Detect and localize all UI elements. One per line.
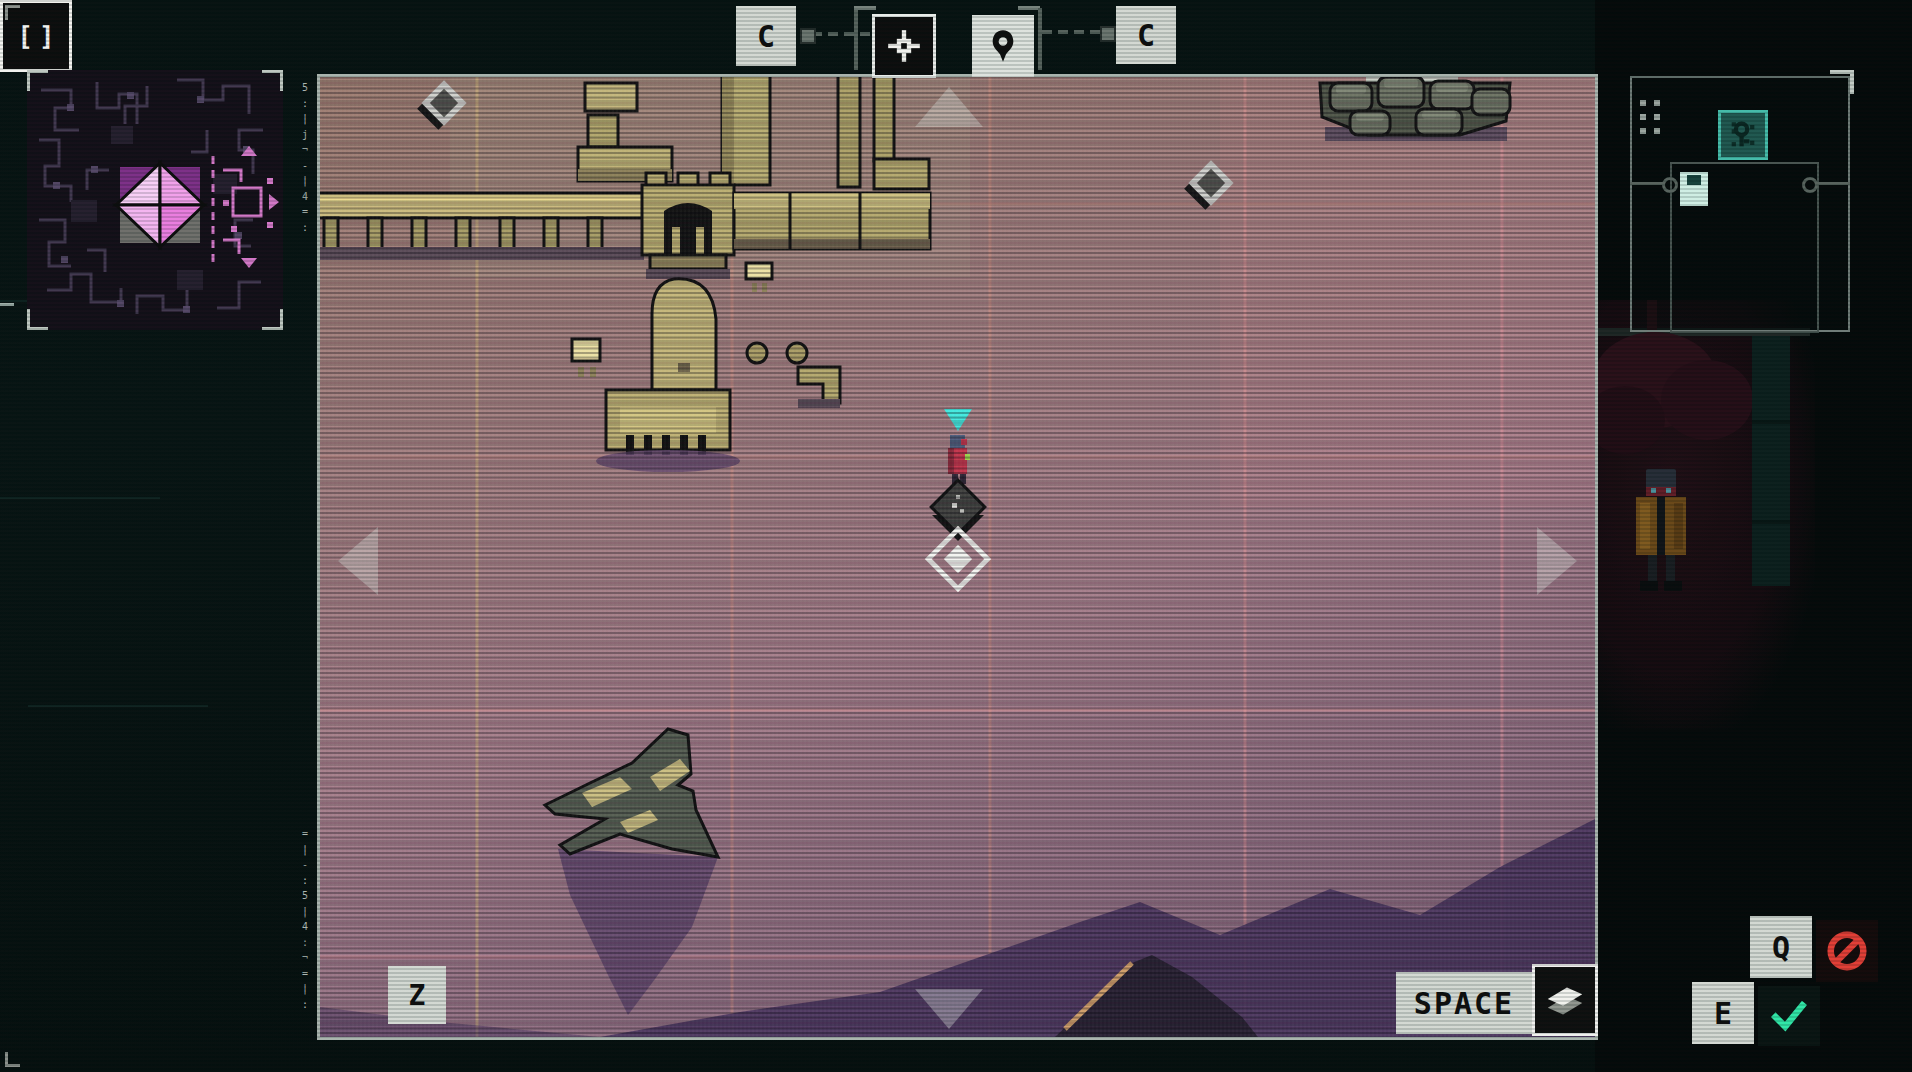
rock-cluster [1320,77,1510,141]
panel-corner-bracket [27,70,48,91]
connector-tick [1018,6,1040,10]
connector-node [800,28,816,44]
prohibition-icon [1824,928,1870,974]
layers-key-label: SPACE [1414,986,1514,1021]
crosshair-icon [884,26,924,66]
edge-glyph-column-top: 5 : | j ¬ - | 4 = : [297,80,313,235]
center-on-player-button[interactable] [872,14,936,78]
connector-line [854,8,858,70]
map-art [320,77,1595,1037]
layers-key-plate[interactable]: SPACE [1396,972,1532,1034]
map-layers-icon [1542,977,1588,1023]
emblem-panel [27,70,283,330]
panel-corner-bracket [262,70,283,91]
connector-node [1662,177,1678,193]
zoom-key-plate[interactable]: Z [388,966,446,1024]
toggle-layers-button[interactable] [1532,964,1598,1036]
cycle-map-right-button[interactable]: C [1116,6,1176,64]
player-cursor-triangle [944,409,972,431]
decline-key-plate[interactable]: Q [1750,916,1812,978]
accept-key-label: E [1714,996,1732,1031]
cycle-left-label: C [757,19,775,54]
emblem-panel-art [27,70,283,330]
glitch-speck [0,303,14,306]
cycle-map-left-button[interactable]: C [736,6,796,66]
checkmark-icon [1766,993,1812,1039]
crashed-ship [545,729,718,1015]
pink-circuit-decor [213,146,279,268]
connector-node [1100,26,1116,42]
player-sprite [948,435,970,484]
connector-line [1630,182,1664,185]
panel-corner-bracket [262,309,283,330]
player-position-group [928,409,987,589]
bracket-corner [5,1052,20,1067]
key-item-icon[interactable] [1718,110,1768,160]
zoom-map-button[interactable]: [] [0,0,72,72]
connector-line [1816,182,1850,185]
accept-key-plate[interactable]: E [1692,982,1754,1044]
map-pin-icon [983,26,1023,66]
connector-line [1042,30,1100,34]
connector-tick [854,6,876,10]
inventory-panel [1630,76,1850,332]
glitch-streak [28,705,208,707]
panel-dot-grid [1640,100,1660,134]
accept-action-tile[interactable] [1758,986,1820,1046]
panel-corner-bracket [1830,70,1854,94]
connector-line [812,32,870,36]
connector-node [1802,177,1818,193]
map-screen: 5 : | j ¬ - | 4 = : = | - : 5 | 4 : ¬ = … [0,0,1912,1072]
place-pin-button[interactable] [972,15,1034,77]
decline-action-tile[interactable] [1816,920,1878,982]
module-chip-icon[interactable] [1680,172,1708,206]
module-emblem [116,163,204,247]
cycle-right-label: C [1137,18,1155,53]
zoom-key-label: Z [409,979,426,1012]
decline-key-label: Q [1772,930,1790,965]
connector-line [1038,8,1042,70]
pink-tint [1220,77,1595,507]
edge-glyph-column-bottom: = | - : 5 | 4 : ¬ = | : [297,826,313,1012]
world-map[interactable] [317,74,1598,1040]
zoom-brackets-icon: [] [11,21,60,51]
bracket-corner [5,5,20,20]
glitch-streak [0,497,160,499]
panel-corner-bracket [27,309,48,330]
